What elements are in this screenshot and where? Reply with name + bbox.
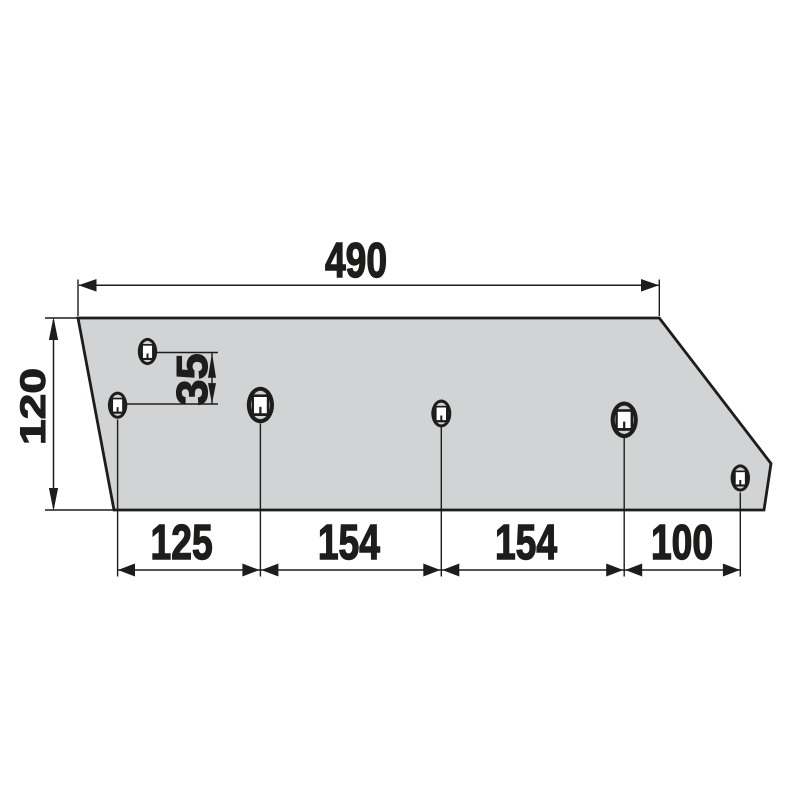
svg-text:154: 154 — [495, 516, 557, 570]
svg-text:120: 120 — [13, 368, 52, 445]
svg-text:100: 100 — [651, 516, 713, 570]
svg-text:35: 35 — [167, 353, 216, 405]
svg-text:125: 125 — [151, 516, 213, 570]
svg-text:490: 490 — [325, 234, 387, 288]
svg-text:154: 154 — [318, 516, 380, 570]
